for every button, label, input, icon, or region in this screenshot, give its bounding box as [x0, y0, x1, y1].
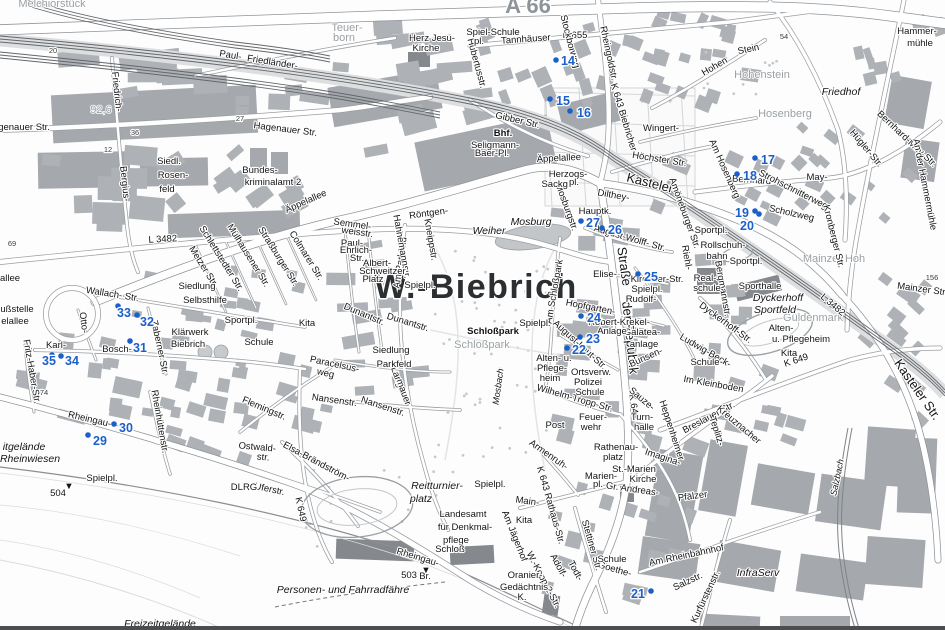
marker-dot-icon — [635, 271, 641, 277]
poi-label: Kita — [299, 318, 316, 329]
poi-label: DLRG — [231, 482, 257, 493]
marker-dot-icon — [58, 353, 64, 359]
marker-dot-icon — [577, 334, 583, 340]
poi-label: Schloßpark — [467, 326, 519, 337]
poi-label: Spielpl. — [631, 284, 662, 295]
area-label: Schloßpark — [454, 339, 510, 351]
poi-label: wehr — [580, 422, 602, 433]
poi-label: kriminalamt 2 — [245, 177, 302, 188]
poi-label: Weiher — [472, 225, 506, 237]
poi-label: Sportpl. — [225, 315, 258, 326]
street-label: 156 — [926, 273, 939, 282]
map-bottom-edge — [0, 626, 945, 630]
poi-label: Selbsthilfe — [183, 295, 227, 306]
street-label: Str. — [350, 253, 364, 264]
marker-number: 15 — [556, 94, 570, 108]
marker-number: 16 — [577, 106, 591, 120]
poi-label: Schule — [244, 337, 273, 348]
poi-label: itgelände — [3, 441, 46, 453]
poi-label: Siedlung — [179, 281, 216, 292]
poi-label: feld — [159, 184, 174, 195]
poi-label: Schule — [597, 554, 626, 565]
area-label: born — [333, 32, 355, 44]
poi-label: Bhf. — [494, 128, 512, 139]
marker-number: 27 — [586, 216, 600, 230]
street-label: Äppelallee — [536, 152, 581, 165]
poi-label: Kirche — [413, 43, 440, 54]
poi-label: Personen- und Fahrradfähre — [277, 584, 410, 596]
marker-number: 17 — [761, 153, 775, 167]
poi-label: Galatea- — [624, 327, 660, 338]
poi-label: platz — [603, 452, 623, 463]
street-label: Sackg. — [541, 179, 570, 190]
marker-dot-icon — [553, 57, 559, 63]
poi-label: Spielpl. — [404, 280, 435, 291]
poi-label: Siedlung — [373, 345, 410, 356]
marker-number: 18 — [743, 169, 757, 183]
poi-label: Rollschuh- — [701, 240, 746, 251]
marker-number: 35 — [42, 354, 56, 368]
marker-number: 26 — [608, 223, 622, 237]
street-label: ußstelle — [0, 304, 33, 315]
marker-dot-icon — [567, 108, 573, 114]
poi-label: Platz — [362, 274, 383, 285]
marker-dot-icon — [734, 171, 740, 177]
marker-dot-icon — [134, 312, 140, 318]
poi-label: Kita — [781, 348, 798, 359]
marker-number: 21 — [631, 587, 645, 601]
marker-dot-icon — [599, 225, 605, 231]
marker-number: 22 — [572, 343, 586, 357]
poi-label: halle — [634, 422, 654, 433]
area-label: Hosenberg — [758, 108, 812, 120]
marker-number: 19 — [735, 206, 749, 220]
marker-dot-icon — [547, 96, 553, 102]
poi-label: Mosburg — [511, 216, 552, 228]
marker-number: 23 — [586, 332, 600, 346]
marker-dot-icon — [756, 211, 762, 217]
poi-label: Oranier- — [508, 570, 543, 581]
street-label: 27 — [236, 114, 244, 123]
poi-label: Hammer- — [897, 26, 937, 37]
poi-label: pl. — [474, 36, 484, 47]
marker-dot-icon — [752, 155, 758, 161]
marker-dot-icon — [85, 432, 91, 438]
marker-dot-icon — [111, 421, 117, 427]
poi-label: Spielpl. — [519, 318, 550, 329]
poi-label: InfraServ — [737, 567, 780, 579]
poi-label: Klärwerk — [172, 327, 209, 338]
marker-dot-icon — [578, 313, 584, 319]
street-label: elallee — [1, 316, 28, 327]
marker-number: 24 — [587, 311, 601, 325]
poi-label: Landesamt — [439, 509, 486, 520]
poi-label: Schule — [575, 387, 604, 398]
street-label: 74 — [40, 388, 48, 397]
poi-label: Post — [545, 420, 564, 431]
poi-label: heim — [540, 373, 561, 384]
map-marker-33[interactable]: 33 — [115, 303, 131, 320]
poi-label: Sportfeld — [754, 304, 797, 316]
poi-label: Schule — [690, 357, 719, 368]
street-label: ▼ — [421, 565, 430, 576]
marker-dot-icon — [578, 218, 584, 224]
poi-label: für Denkmal- — [438, 522, 492, 533]
street-label: 69 — [8, 239, 16, 248]
poi-label: K. — [518, 592, 527, 603]
poi-label: Sportpl. — [730, 256, 763, 267]
poi-label: Rheinwiesen — [0, 453, 60, 465]
marker-number: 25 — [644, 270, 658, 284]
street-label: Karl- — [46, 340, 66, 351]
poi-label: Schloß — [435, 544, 465, 555]
poi-label: Siedl. — [157, 156, 181, 167]
street-label: Wingert- — [643, 123, 679, 134]
poi-label: Dyckerhoff — [753, 292, 804, 304]
poi-label: Spielpl. — [86, 473, 117, 484]
poi-label: pl. — [593, 479, 603, 490]
street-label: 54 — [780, 32, 788, 41]
poi-label: Sporthalle — [739, 281, 782, 292]
street-label: L 3482 — [148, 233, 177, 245]
street-label: 36 — [131, 128, 139, 137]
map-viewport[interactable]: W.-Biebrich ++++++++++ W.-BiebrichA 66Me… — [0, 0, 945, 630]
marker-dot-icon — [648, 588, 654, 594]
poi-label: schule — [693, 283, 720, 294]
poi-label: u. Pflegeheim — [772, 334, 830, 345]
poi-label: anlage — [630, 339, 659, 350]
street-label: Bosch- — [102, 344, 132, 355]
street-label: May- — [806, 172, 827, 183]
map-marker-35[interactable]: 35 — [42, 352, 56, 368]
marker-number: 14 — [561, 54, 575, 68]
poi-label: Kita — [516, 515, 533, 526]
motorway-label: A 66 — [505, 0, 551, 18]
poi-label: bahn — [706, 251, 727, 262]
poi-label: Alten- — [769, 323, 794, 334]
street-label: pl. — [569, 177, 579, 188]
marker-number: 33 — [117, 306, 131, 320]
poi-label: platz — [409, 493, 433, 505]
poi-label: Anlage — [597, 326, 627, 337]
street-label: Hagenauer Str. — [0, 122, 50, 133]
street-label: 20 — [49, 46, 57, 55]
marker-number: 34 — [65, 354, 79, 368]
poi-label: Sportpl. — [695, 225, 728, 236]
street-label: ▼ — [64, 481, 73, 492]
poi-label: Reitturnier- — [411, 480, 463, 492]
marker-number: 20 — [740, 219, 754, 233]
poi-label: Parkfeld — [377, 359, 412, 370]
marker-number: 31 — [133, 341, 147, 355]
poi-label: Kirche — [630, 474, 657, 485]
poi-label: Baer-Pl. — [475, 148, 509, 159]
marker-number: 32 — [140, 315, 154, 329]
street-label: 12 — [104, 145, 112, 154]
area-label: Melchiorstück — [18, 0, 86, 10]
street-label: allee — [0, 273, 20, 284]
street-label: str. — [256, 451, 270, 463]
street-label: Elise- — [593, 269, 617, 280]
poi-label: Rosen- — [158, 170, 189, 181]
marker-dot-icon — [127, 338, 133, 344]
street-label: 503 — [401, 570, 417, 581]
poi-label: Friedhof — [822, 86, 862, 98]
area-label: 92,6 — [90, 104, 111, 116]
street-label: Rudolf- — [626, 294, 657, 305]
marker-number: 29 — [93, 434, 107, 448]
poi-label: Bundes- — [242, 165, 277, 176]
poi-label: Spielpl. — [474, 479, 505, 490]
marker-number: 30 — [119, 421, 133, 435]
area-label: Hohenstein — [734, 69, 790, 81]
map-canvas: ++++++++++ W.-BiebrichA 66MelchiorstückT… — [0, 0, 945, 630]
poi-label: Biebrich — [171, 339, 205, 350]
marker-dot-icon — [564, 345, 570, 351]
poi-label: mühle — [907, 38, 933, 49]
